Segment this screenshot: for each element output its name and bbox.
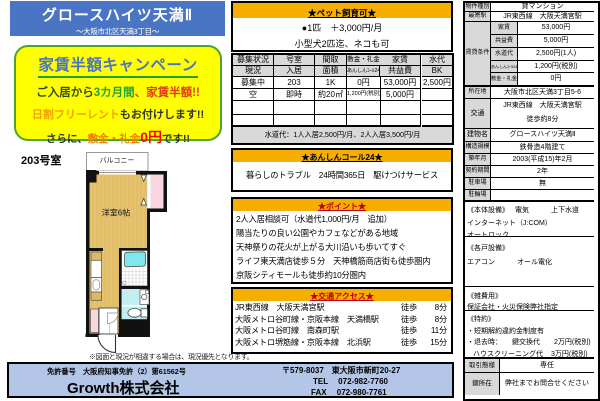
svg-text:洋室6帖: 洋室6帖 bbox=[102, 208, 130, 218]
svg-text:バルコニー: バルコニー bbox=[100, 157, 135, 165]
